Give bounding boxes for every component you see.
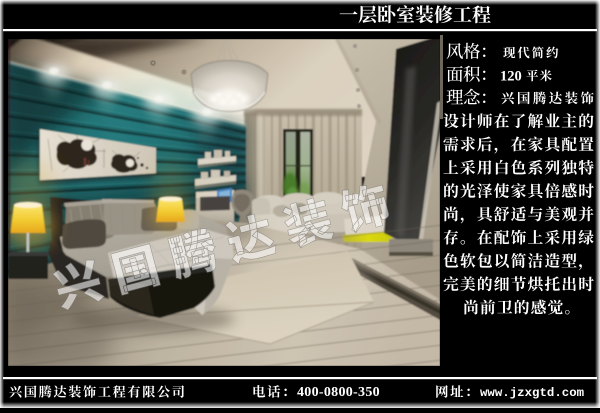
svg-text:120: 120 [500, 69, 522, 85]
svg-text:400-0800-350: 400-0800-350 [297, 385, 380, 400]
svg-text:www.jzxgtd.com: www.jzxgtd.com [480, 386, 584, 400]
